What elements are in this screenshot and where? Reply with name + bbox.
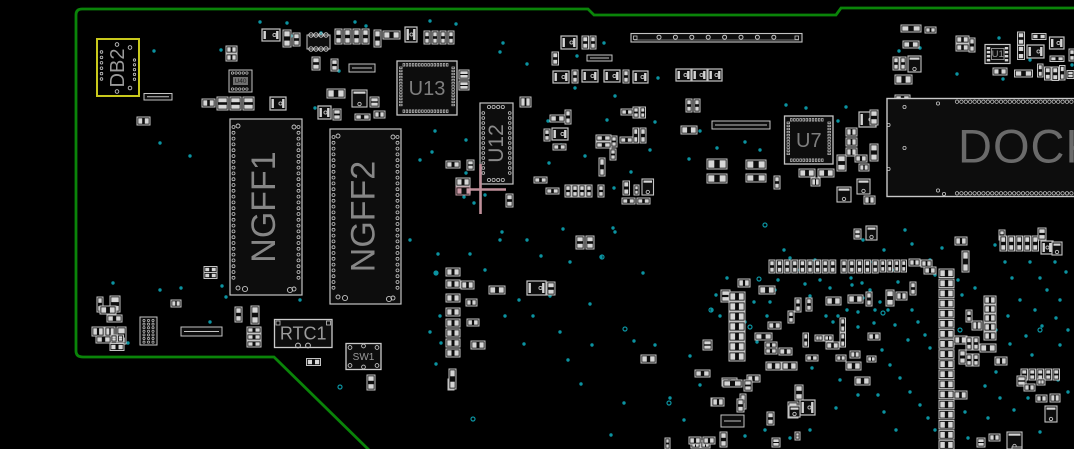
svg-text:U40: U40	[235, 78, 247, 85]
svg-text:NGFF2: NGFF2	[345, 161, 383, 272]
svg-text:U1: U1	[992, 49, 1004, 60]
svg-text:DOCK: DOCK	[958, 120, 1074, 173]
svg-text:U12: U12	[485, 124, 508, 163]
svg-text:SW1: SW1	[353, 352, 375, 363]
svg-text:NGFF1: NGFF1	[245, 151, 283, 262]
svg-text:RTC1: RTC1	[280, 324, 327, 344]
svg-text:U13: U13	[409, 78, 446, 100]
svg-text:DB2: DB2	[107, 49, 129, 88]
svg-text:U7: U7	[796, 130, 822, 152]
